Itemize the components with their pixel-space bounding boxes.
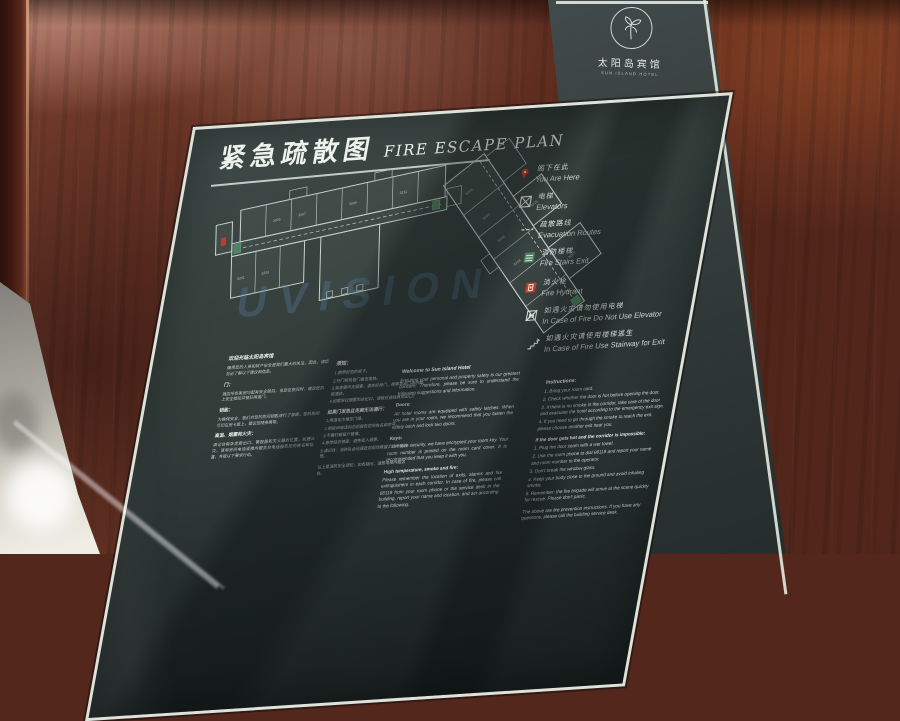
- elevator-icon: [518, 195, 532, 208]
- background-highlight: [6, 460, 76, 530]
- stairway-exit-icon: [526, 337, 540, 350]
- fire-escape-plan-panel: 紧急疏散图FIRE ESCAPE PLAN 3205 3207 3209 321…: [85, 92, 733, 721]
- column-en-instructions: Instructions: 1. Bring your room card. 2…: [521, 372, 673, 523]
- column-zh-welcome: 欢迎光临太阳岛宾馆 确保您的人身和财产安全是我们最大的关注，因此，请您务必了解以…: [210, 350, 331, 464]
- hotel-name-zh: 太阳岛宾馆: [587, 53, 673, 71]
- top-shadow: [0, 0, 900, 26]
- paragraph: Please remember the location of exits, a…: [377, 470, 503, 510]
- no-elevator-icon: [524, 309, 538, 322]
- flower-icon: [616, 12, 647, 43]
- fire-hydrant-icon: [524, 281, 538, 294]
- column-footer: The above are fire prevention instructio…: [521, 501, 649, 522]
- you-are-here-icon: [518, 167, 532, 180]
- hotel-logo: 太阳岛宾馆 SUN ISLAND HOTEL: [587, 6, 675, 78]
- legend-item-elevators: 电梯 Elevators: [518, 192, 570, 213]
- logo-circle: [610, 6, 653, 49]
- evacuation-route-icon: [520, 223, 534, 236]
- backing-frame-top: [556, 1, 708, 4]
- you-are-here-marker: [221, 237, 226, 246]
- fire-stairs-icon: [522, 251, 536, 264]
